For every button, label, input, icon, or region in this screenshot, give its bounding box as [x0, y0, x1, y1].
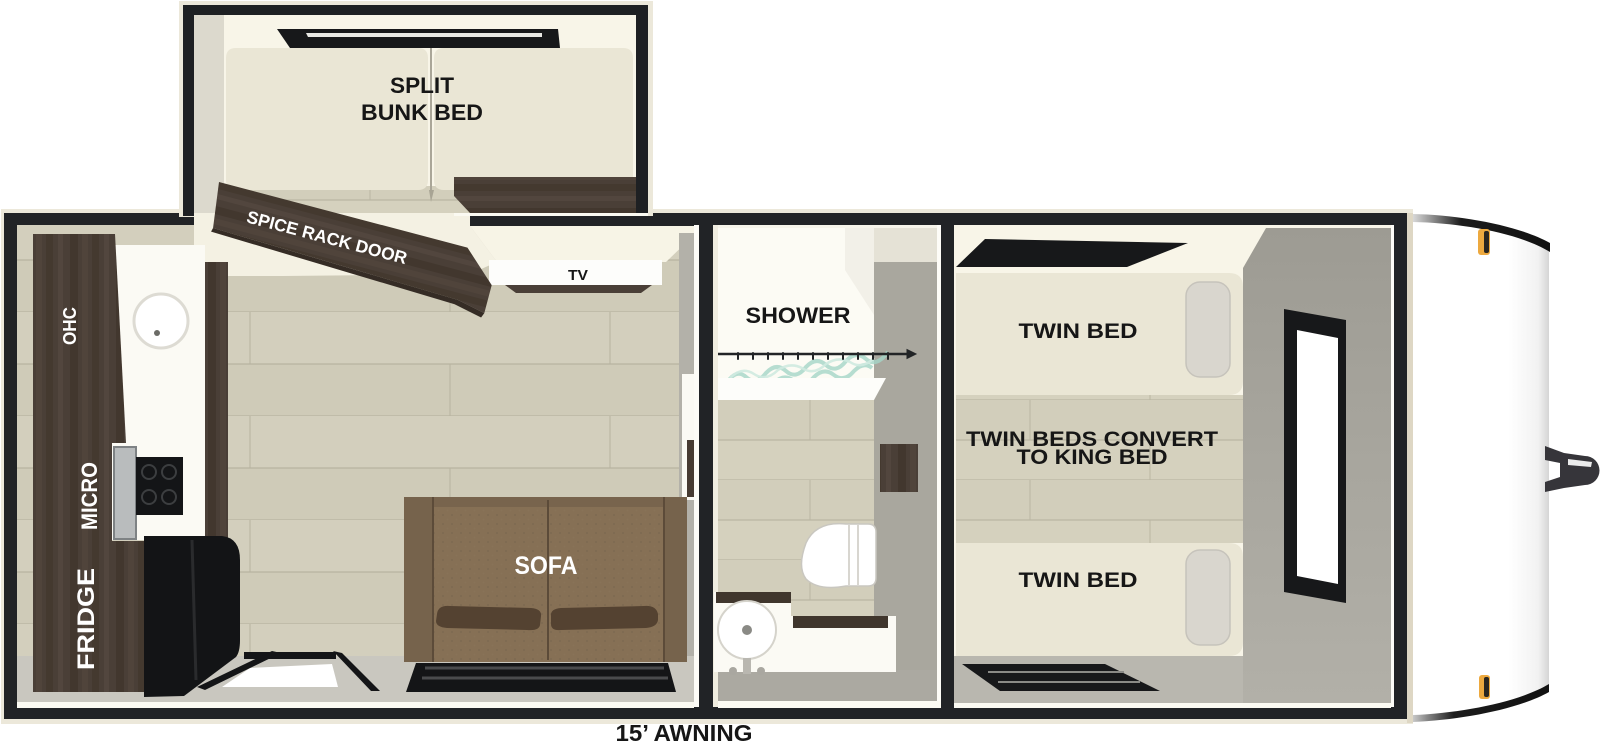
- svg-text:MICRO: MICRO: [77, 462, 102, 530]
- svg-text:SHOWER: SHOWER: [746, 303, 851, 328]
- svg-text:TV: TV: [568, 267, 588, 284]
- svg-text:SPLIT: SPLIT: [390, 73, 455, 98]
- svg-text:OHC: OHC: [60, 307, 80, 345]
- svg-text:SOFA: SOFA: [515, 552, 578, 580]
- svg-text:TWIN BED: TWIN BED: [1019, 569, 1138, 592]
- svg-text:TO KING BED: TO KING BED: [1017, 446, 1168, 469]
- svg-text:FRIDGE: FRIDGE: [73, 568, 100, 670]
- svg-text:15’ AWNING: 15’ AWNING: [616, 720, 753, 742]
- svg-text:BUNK BED: BUNK BED: [361, 100, 483, 125]
- svg-text:TWIN BED: TWIN BED: [1019, 320, 1138, 343]
